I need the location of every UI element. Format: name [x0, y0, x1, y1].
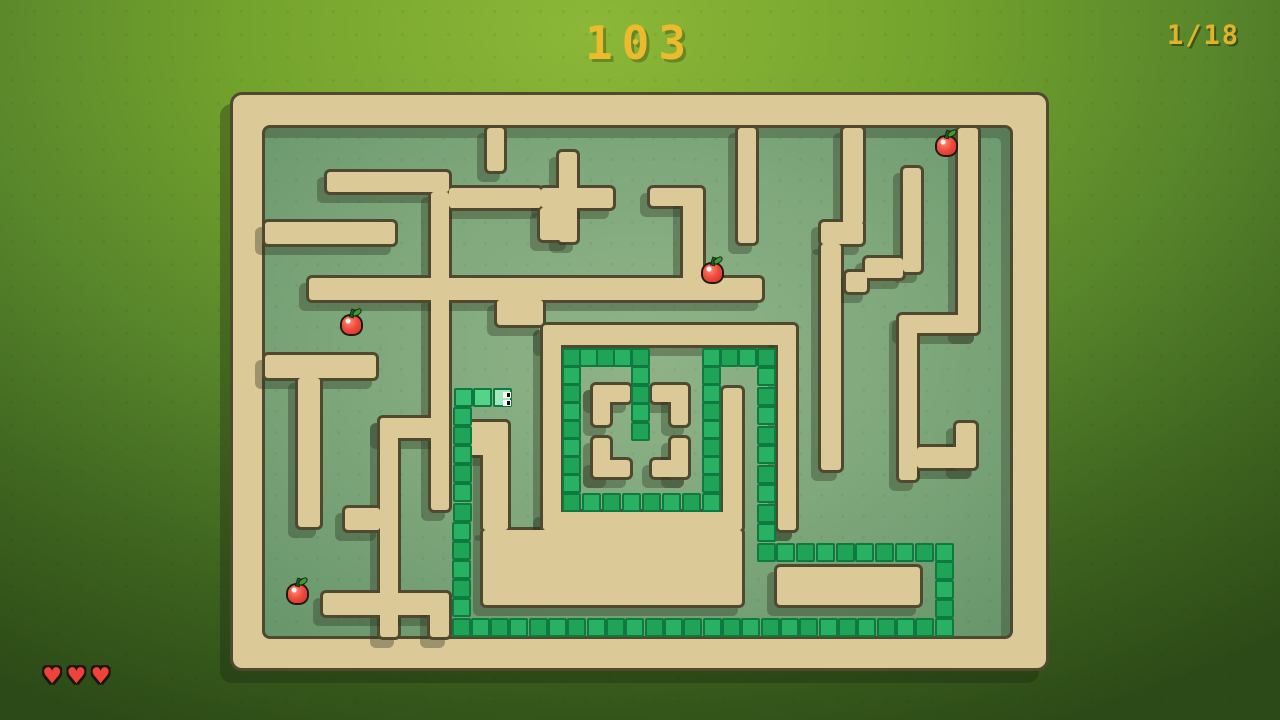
- snake-body-segment: [702, 420, 721, 439]
- snake-body-segment: [562, 384, 581, 403]
- snake-body-segment: [836, 543, 855, 562]
- maze-wall: [903, 168, 921, 272]
- maze-wall: [543, 512, 742, 530]
- snake-body-segment: [567, 618, 586, 637]
- snake-body-segment: [757, 406, 776, 425]
- maze-wall: [483, 530, 742, 605]
- maze-wall: [683, 188, 703, 283]
- game-viewport[interactable]: 103 1/18 ♥♥♥: [0, 0, 1280, 720]
- snake-body-segment: [509, 618, 528, 637]
- snake-body-segment: [857, 618, 876, 637]
- snake-body-segment: [613, 348, 632, 367]
- maze-wall: [497, 300, 543, 325]
- maze-wall: [899, 315, 917, 480]
- maze-wall: [543, 325, 561, 530]
- snake-body-segment: [453, 464, 472, 483]
- snake-body-segment: [722, 618, 741, 637]
- maze: [0, 0, 1280, 720]
- snake-body-segment: [562, 493, 581, 512]
- snake-body-segment: [622, 493, 641, 512]
- snake-body-segment: [562, 474, 581, 493]
- maze-wall: [483, 422, 508, 530]
- snake-body-segment: [702, 384, 721, 403]
- snake-body-segment: [799, 618, 818, 637]
- snake-body-segment: [796, 543, 815, 562]
- snake-body-segment: [757, 484, 776, 503]
- maze-wall: [430, 593, 449, 637]
- snake-body-segment: [757, 523, 776, 542]
- snake-body-segment: [631, 366, 650, 385]
- snake-body-segment: [720, 348, 739, 367]
- snake-body-segment: [562, 348, 581, 367]
- apple: [937, 137, 956, 155]
- snake-body-segment: [702, 456, 721, 475]
- snake-body-segment: [877, 618, 896, 637]
- snake-body-segment: [741, 618, 760, 637]
- snake-body-segment: [855, 543, 874, 562]
- snake-body-segment: [562, 456, 581, 475]
- maze-wall: [777, 567, 920, 605]
- snake-body-segment: [596, 348, 615, 367]
- maze-wall: [431, 192, 449, 510]
- maze-wall: [593, 385, 610, 425]
- snake-body-segment: [548, 618, 567, 637]
- snake-body-segment: [473, 388, 492, 407]
- snake-body-segment: [761, 618, 780, 637]
- snake-body-segment: [645, 618, 664, 637]
- maze-wall: [956, 423, 976, 468]
- snake-body-segment: [935, 618, 954, 637]
- snake-body-segment: [579, 348, 598, 367]
- snake-body-segment: [757, 348, 776, 367]
- snake-body-segment: [757, 543, 776, 562]
- snake-body-segment: [703, 618, 722, 637]
- maze-wall: [265, 355, 376, 378]
- maze-wall: [723, 388, 742, 530]
- snake-body-segment: [702, 402, 721, 421]
- snake-body-segment: [819, 618, 838, 637]
- snake-body-segment: [587, 618, 606, 637]
- snake-body-segment: [452, 560, 471, 579]
- snake-body-segment: [757, 426, 776, 445]
- maze-wall: [541, 188, 613, 208]
- snake-body-segment: [875, 543, 894, 562]
- maze-wall: [309, 278, 762, 300]
- snake-body-segment: [757, 367, 776, 386]
- snake-body-segment: [562, 438, 581, 457]
- snake-body-segment: [915, 543, 934, 562]
- snake-body-segment: [631, 403, 650, 422]
- snake-body-segment: [562, 420, 581, 439]
- snake-body-segment: [562, 402, 581, 421]
- maze-wall: [821, 222, 863, 244]
- snake-body-segment: [602, 493, 621, 512]
- snake-body-segment: [453, 483, 472, 502]
- snake-body-segment: [631, 422, 650, 441]
- snake-body-segment: [702, 493, 721, 512]
- maze-wall: [327, 172, 449, 192]
- snake-body-segment: [935, 580, 954, 599]
- maze-wall: [778, 325, 796, 530]
- apple: [703, 264, 722, 282]
- apple: [288, 585, 307, 603]
- snake-body-segment: [582, 493, 601, 512]
- maze-wall: [846, 272, 867, 292]
- snake-body-segment: [454, 388, 473, 407]
- snake-body-segment: [642, 493, 661, 512]
- snake-body-segment: [452, 598, 471, 617]
- maze-wall: [738, 128, 756, 243]
- snake-body-segment: [453, 426, 472, 445]
- maze-wall: [298, 378, 320, 527]
- maze-wall: [865, 258, 903, 278]
- maze-wall: [543, 325, 796, 345]
- snake-body-segment: [631, 385, 650, 404]
- snake-body-segment: [452, 618, 471, 637]
- snake-body-segment: [776, 543, 795, 562]
- snake-body-segment: [664, 618, 683, 637]
- snake-body-segment: [757, 387, 776, 406]
- snake-body-segment: [915, 618, 934, 637]
- snake-body-segment: [896, 618, 915, 637]
- snake-body-segment: [816, 543, 835, 562]
- snake-body-segment: [702, 438, 721, 457]
- snake-body-segment: [471, 618, 490, 637]
- snake-body-segment: [935, 561, 954, 580]
- snake-body-segment: [683, 618, 702, 637]
- snake-body-segment: [452, 541, 471, 560]
- snake-body-segment: [702, 366, 721, 385]
- snake-body-segment: [453, 503, 472, 522]
- apple: [342, 316, 361, 334]
- snake-head: [493, 388, 512, 407]
- snake-body-segment: [682, 493, 701, 512]
- maze-wall: [778, 512, 796, 530]
- snake-body-segment: [453, 407, 472, 426]
- snake-body-segment: [490, 618, 509, 637]
- snake-pupil: [507, 401, 510, 405]
- snake-body-segment: [757, 504, 776, 523]
- snake-body-segment: [757, 445, 776, 464]
- snake-body-segment: [738, 348, 757, 367]
- maze-wall: [671, 385, 688, 425]
- maze-wall: [593, 438, 610, 477]
- snake-body-segment: [529, 618, 548, 637]
- maze-wall: [843, 128, 863, 224]
- maze-wall: [265, 222, 395, 244]
- snake-body-segment: [780, 618, 799, 637]
- snake-body-segment: [625, 618, 644, 637]
- snake-body-segment: [452, 522, 471, 541]
- snake-body-segment: [757, 465, 776, 484]
- snake-body-segment: [935, 543, 954, 562]
- snake-body-segment: [662, 493, 681, 512]
- snake-body-segment: [562, 366, 581, 385]
- snake-pupil: [507, 393, 510, 397]
- maze-wall: [821, 244, 841, 470]
- snake-body-segment: [606, 618, 625, 637]
- snake-body-segment: [702, 348, 721, 367]
- maze-wall: [449, 188, 541, 208]
- maze-wall: [540, 208, 570, 240]
- snake-body-segment: [935, 599, 954, 618]
- snake-body-segment: [452, 579, 471, 598]
- snake-body-segment: [895, 543, 914, 562]
- snake-body-segment: [702, 474, 721, 493]
- snake-body-segment: [631, 348, 650, 367]
- snake-body-segment: [453, 445, 472, 464]
- maze-wall: [958, 128, 978, 333]
- maze-wall: [487, 128, 504, 171]
- maze-wall: [345, 508, 380, 530]
- maze-wall: [671, 438, 688, 477]
- snake-body-segment: [838, 618, 857, 637]
